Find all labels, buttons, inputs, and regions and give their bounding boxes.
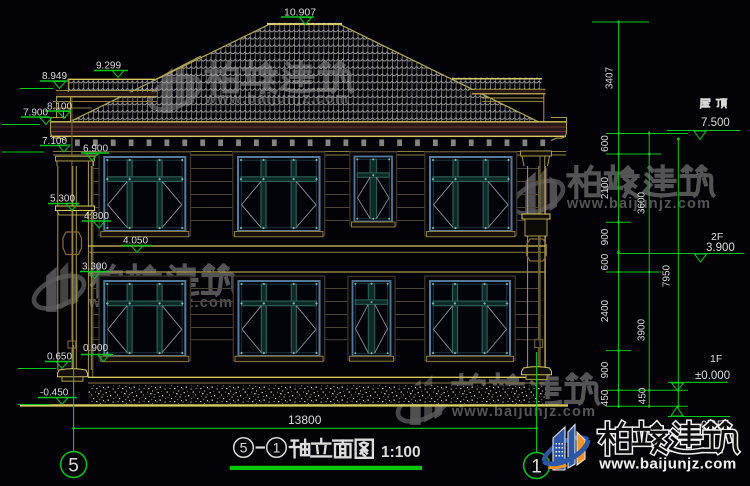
svg-text:1: 1: [273, 440, 281, 456]
svg-text:3600: 3600: [637, 191, 648, 214]
svg-text:3900: 3900: [637, 318, 648, 341]
svg-text:0.900: 0.900: [83, 343, 108, 354]
svg-text:2100: 2100: [600, 176, 611, 199]
svg-text:2400: 2400: [600, 299, 611, 322]
svg-text:1: 1: [531, 457, 542, 478]
svg-text:600: 600: [600, 135, 611, 152]
svg-text:7950: 7950: [662, 264, 673, 287]
svg-text:3407: 3407: [605, 66, 616, 89]
svg-text:600: 600: [600, 253, 611, 270]
svg-text:www.baijunjz.com: www.baijunjz.com: [598, 456, 736, 473]
svg-text:3.900: 3.900: [706, 242, 735, 254]
svg-text:900: 900: [600, 228, 611, 245]
svg-text:5: 5: [240, 440, 248, 456]
svg-text:450: 450: [638, 387, 649, 404]
svg-text:±0.000: ±0.000: [695, 370, 730, 382]
svg-text:450: 450: [600, 389, 611, 406]
svg-text:5: 5: [68, 456, 79, 477]
svg-text:1F: 1F: [710, 353, 722, 365]
svg-text:7.500: 7.500: [701, 117, 730, 129]
svg-text:1:100: 1:100: [381, 444, 421, 461]
svg-text:900: 900: [600, 361, 611, 378]
svg-text:13800: 13800: [288, 413, 322, 427]
